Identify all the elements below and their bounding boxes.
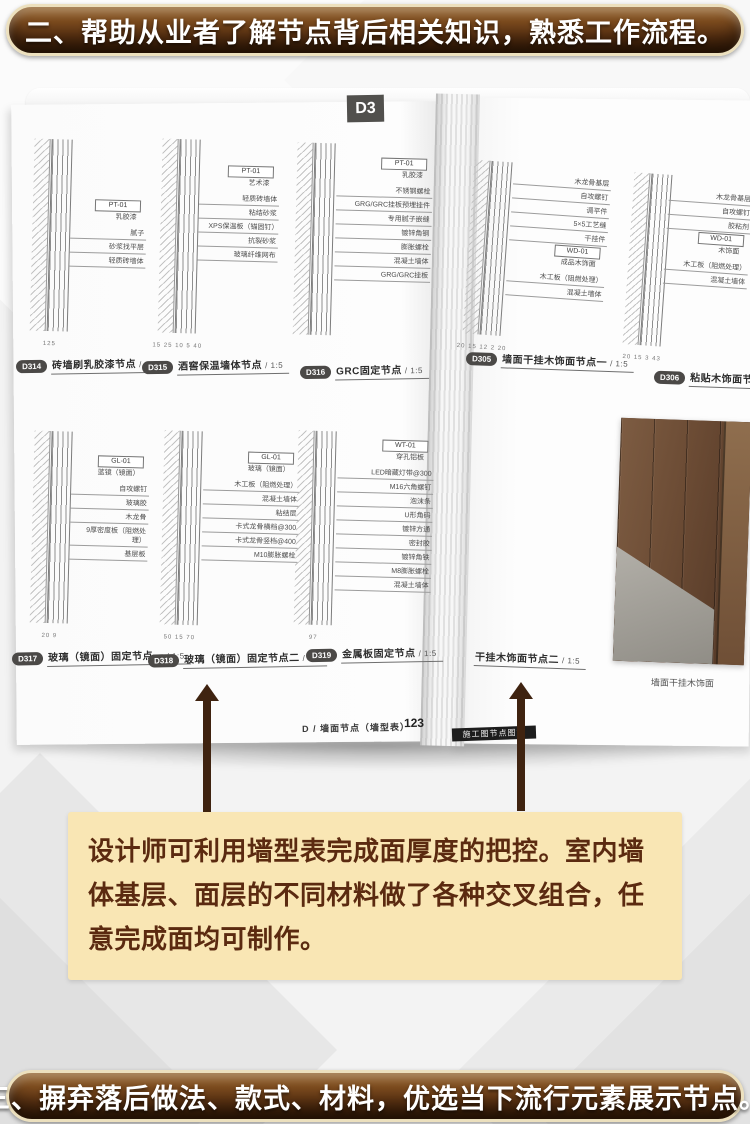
diagram-labels: 木龙骨基层自攻螺钉调平件5×5工艺缝干挂件WD-01成品木饰面木工板（阻燃处理）…	[505, 170, 611, 302]
wall-section-drawing	[30, 431, 73, 624]
top-banner: 二、帮助从业者了解节点背后相关知识，熟悉工作流程。	[6, 4, 744, 56]
diagram-caption-d315: D315 酒窖保温墙体节点/ 1:5	[142, 356, 289, 377]
diagram-title: 酒窖保温墙体节点/ 1:5	[177, 356, 289, 376]
material-label: 基层板	[69, 546, 147, 562]
diagram-code: D318	[148, 654, 179, 668]
callout-pin-left	[195, 684, 219, 813]
wall-section-drawing	[158, 139, 201, 334]
diagram-title: GRC固定节点/ 1:5	[335, 361, 429, 381]
diagram-scale: / 1:5	[265, 361, 283, 370]
material-label: 玻璃（镜面）	[248, 465, 290, 476]
wall-section-drawing	[463, 160, 513, 336]
diagram-code: D317	[12, 652, 43, 666]
pin-arrow-icon	[509, 682, 533, 699]
diagram-caption-d318: D318 玻璃（镜面）固定节点二/ 1:5	[148, 648, 327, 669]
wall-section-drawing	[293, 142, 336, 335]
pin-stem	[203, 701, 211, 813]
diagram-labels: PT-01乳胶漆不锈钢螺栓GRG/GRC挂板预埋挂件专用腻子嵌缝镀锌角钢膨胀螺栓…	[334, 155, 433, 282]
chapter-tab: D3	[347, 95, 384, 123]
material-label: 轻质砖墙体	[69, 253, 145, 269]
note-text: 设计师可利用墙型表完成面厚度的把控。室内墙体基层、面层的不同材料做了各种交叉组合…	[88, 829, 662, 961]
material-label: 乳胶漆	[116, 213, 137, 224]
detail-diagram-d305: 木龙骨基层自攻螺钉调平件5×5工艺缝干挂件WD-01成品木饰面木工板（阻燃处理）…	[451, 155, 614, 359]
material-tag: PT-01	[95, 199, 141, 212]
top-banner-text: 二、帮助从业者了解节点背后相关知识，熟悉工作流程。	[25, 11, 725, 50]
material-label: 玻璃纤维网布	[198, 247, 278, 263]
detail-diagram-d319: WT-01穿孔铝板LED暗藏灯带@300M16六角螺钉泡沫条U形角码镀锌方通密封…	[283, 426, 437, 644]
diagram-labels: WT-01穿孔铝板LED暗藏灯带@300M16六角螺钉泡沫条U形角码镀锌方通密封…	[335, 437, 435, 592]
detail-diagram-d318: GL-01玻璃（镜面）木工板（阻燃处理）混凝土墙体粘结层卡式龙骨横档@300卡式…	[149, 426, 303, 644]
pin-stem	[517, 699, 525, 811]
note-box: 设计师可利用墙型表完成面厚度的把控。室内墙体基层、面层的不同材料做了各种交叉组合…	[68, 812, 682, 980]
wood-panel-photo	[613, 418, 750, 665]
material-label: 成品木饰面	[560, 258, 596, 270]
material-label: 混凝土墙体	[335, 576, 431, 593]
diagram-code: D316	[300, 365, 331, 379]
material-label: 9厚密度板（阻燃处理）	[70, 523, 149, 548]
bottom-banner-text: 三、摒弃落后做法、款式、材料，优选当下流行元素展示节点。	[0, 1077, 750, 1116]
material-tag: GL-01	[98, 455, 144, 468]
diagram-title: 金属板固定节点/ 1:5	[341, 644, 443, 664]
detail-diagram-d317: GL-01蓝镜（镜面）自攻螺钉玻璃胶木龙骨9厚密度板（阻燃处理）基层板 20 9	[19, 426, 153, 641]
diagram-code: D315	[142, 360, 173, 374]
diagram-title: 粘贴木饰面节点/ 1:5	[689, 369, 750, 391]
detail-diagram-d306: 木龙骨基层自攻螺钉胶粘剂WD-01木饰面木工板（阻燃处理）混凝土墙体 20 15…	[611, 168, 750, 369]
diagram-code: D319	[306, 648, 337, 662]
diagram-code: D314	[16, 359, 47, 373]
diagram-title: 干挂木饰面节点二/ 1:5	[474, 648, 587, 670]
page-number: 123	[404, 716, 424, 730]
wall-section-drawing	[30, 139, 73, 332]
callout-pin-right	[509, 682, 533, 811]
wall-section-drawing	[294, 430, 337, 625]
pin-arrow-icon	[195, 684, 219, 701]
diagram-labels: GL-01蓝镜（镜面）自攻螺钉玻璃胶木龙骨9厚密度板（阻燃处理）基层板	[69, 454, 150, 562]
diagram-caption-d316: D316 GRC固定节点/ 1:5	[300, 361, 429, 381]
diagram-scale: / 1:5	[562, 656, 580, 666]
material-label: GRG/GRC挂板	[334, 266, 430, 283]
material-label: 艺术漆	[248, 179, 269, 190]
bottom-banner: 三、摒弃落后做法、款式、材料，优选当下流行元素展示节点。	[6, 1070, 744, 1122]
diagram-scale: / 1:5	[405, 366, 423, 375]
page-footer: D / 墙面节点（墙型表）	[302, 720, 410, 735]
diagram-scale: / 1:5	[610, 359, 628, 369]
diagram-code: D305	[466, 352, 498, 366]
diagram-labels: 木龙骨基层自攻螺钉胶粘剂WD-01木饰面木工板（阻燃处理）混凝土墙体	[663, 187, 750, 290]
material-label: M10膨胀螺栓	[201, 546, 297, 563]
diagram-code: D306	[654, 370, 686, 384]
material-tag: WD-01	[698, 232, 745, 247]
diagram-caption-d319: D319 金属板固定节点/ 1:5	[306, 644, 443, 664]
wall-section-drawing	[160, 430, 203, 625]
diagram-labels: PT-01乳胶漆腻子砂浆找平层轻质砖墙体	[69, 198, 147, 269]
diagram-caption-partial: 干挂木饰面节点二/ 1:5	[474, 648, 587, 670]
detail-diagram-d314: PT-01乳胶漆腻子砂浆找平层轻质砖墙体 125	[19, 134, 151, 349]
material-tag: WT-01	[382, 440, 428, 453]
material-label: 蓝镜（镜面）	[97, 468, 139, 479]
detail-diagram-d315: PT-01艺术漆轻质砖墙体粘结砂浆XPS保温板（锚固钉）抗裂砂浆玻璃纤维网布 1…	[147, 134, 283, 351]
material-label: 木饰面	[718, 246, 740, 257]
photo-caption: 墙面干挂木饰面	[605, 675, 750, 691]
diagram-scale: / 1:5	[419, 649, 437, 658]
material-tag: PT-01	[228, 165, 274, 178]
promo-page: 二、帮助从业者了解节点背后相关知识，熟悉工作流程。 D3 PT-01乳胶漆腻子砂…	[0, 0, 750, 1124]
material-label: 乳胶漆	[402, 171, 423, 182]
detail-diagram-d316: PT-01乳胶漆不锈钢螺栓GRG/GRC挂板预埋挂件专用腻子嵌缝镀锌角钢膨胀螺栓…	[282, 138, 435, 354]
material-tag: PT-01	[381, 158, 427, 171]
material-label: 穿孔铝板	[396, 453, 424, 464]
diagram-labels: PT-01艺术漆轻质砖墙体粘结砂浆XPS保温板（锚固钉）抗裂砂浆玻璃纤维网布	[198, 164, 281, 263]
